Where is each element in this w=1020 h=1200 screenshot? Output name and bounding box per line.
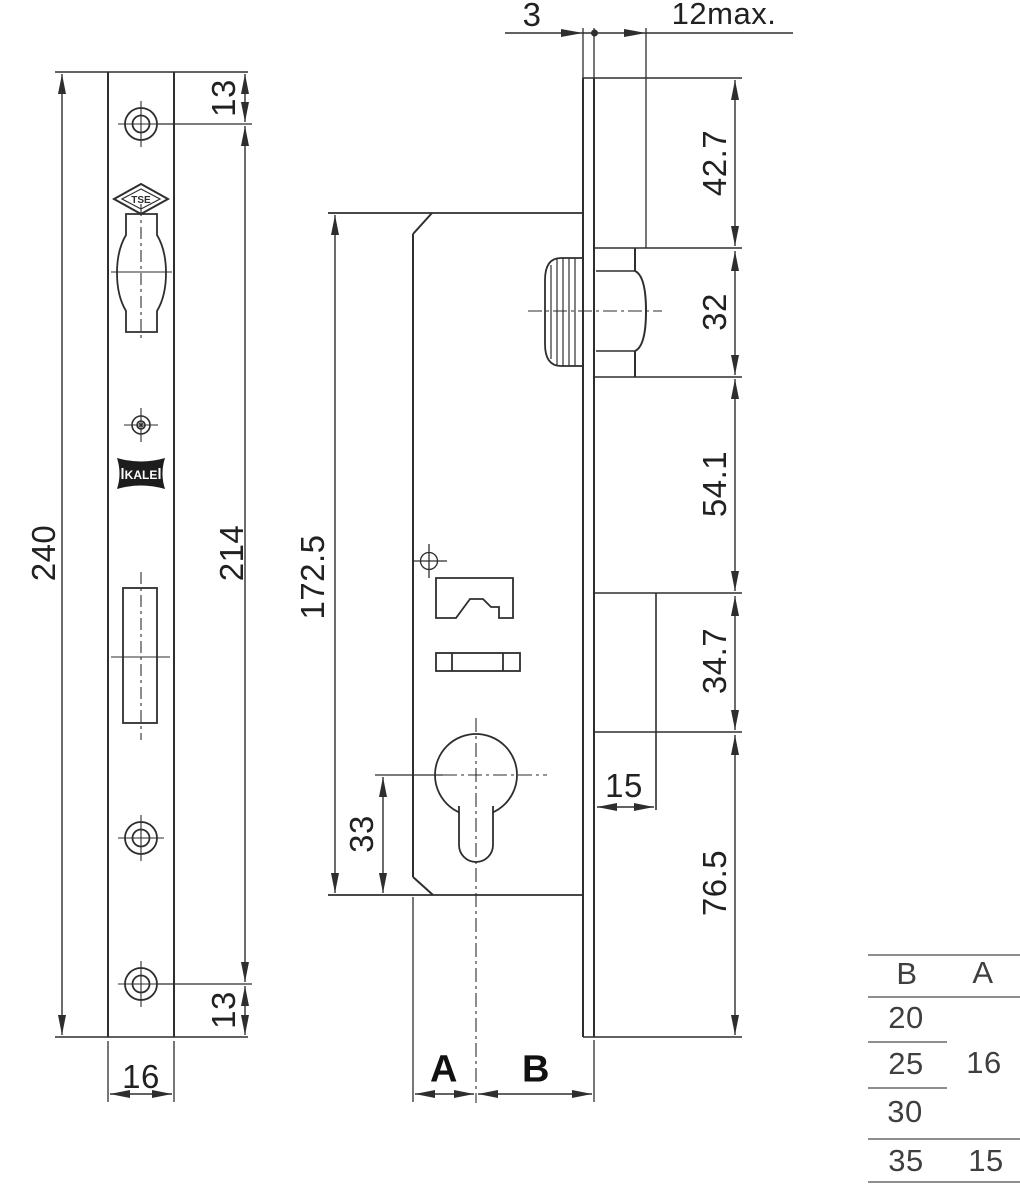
- dim-total-height: 240: [25, 525, 63, 582]
- table-b-30: 30: [887, 1094, 922, 1130]
- dim-seg-lower: 34.7: [696, 628, 734, 694]
- cylinder-centerlines: [375, 718, 547, 1103]
- dim-seg-top: 42.7: [696, 130, 734, 196]
- table-b-20: 20: [888, 1000, 923, 1036]
- table-a-last: 15: [968, 1143, 1003, 1179]
- dim-hole-spacing: 214: [213, 525, 251, 582]
- dim-label-a: A: [430, 1049, 458, 1092]
- table-header-b: B: [896, 956, 917, 992]
- dim-faceplate-width: 16: [122, 1058, 160, 1096]
- dim-seg-bottom: 76.5: [696, 850, 734, 916]
- latch-follower-cutout: [436, 578, 513, 618]
- dim-cover-width: 15: [605, 767, 643, 805]
- latch-bolt-front: [111, 204, 172, 342]
- screw-hole-middle: [118, 815, 164, 861]
- knurled-roller: [545, 258, 583, 366]
- drawing-linework: TSE KALE: [0, 0, 1020, 1200]
- table-b-35: 35: [888, 1143, 923, 1179]
- slot-cutout: [436, 653, 520, 671]
- table-header-a: A: [972, 955, 993, 991]
- dim-label-b: B: [522, 1049, 550, 1092]
- fixing-screw: [124, 408, 158, 442]
- dim-faceplate-thickness: 3: [523, 0, 542, 34]
- deadbolt-slot-front: [111, 572, 170, 740]
- technical-drawing-lock: TSE KALE: [0, 0, 1020, 1200]
- side-view-dimensions: [335, 215, 594, 1102]
- kale-logo: KALE: [117, 458, 165, 489]
- dim-top-hole-offset: 13: [205, 79, 243, 117]
- faceplate-edge: [583, 28, 646, 1037]
- dim-seg-roller: 32: [696, 293, 734, 331]
- screw-hole-top: [118, 101, 164, 147]
- front-view-faceplate: [55, 72, 248, 1102]
- screw-hole-bottom: [118, 961, 164, 1007]
- table-a-shared: 16: [966, 1045, 1001, 1081]
- dim-seg-mid: 54.1: [696, 451, 734, 517]
- table-b-25: 25: [888, 1046, 923, 1082]
- dim-cylinder-to-bottom: 33: [343, 815, 381, 853]
- dim-bottom-hole-offset: 13: [205, 991, 243, 1029]
- kale-logo-text: KALE: [125, 468, 158, 482]
- dim-max-projection: 12max.: [672, 0, 777, 32]
- pivot-marker: [413, 544, 447, 578]
- dim-case-height: 172.5: [294, 534, 332, 619]
